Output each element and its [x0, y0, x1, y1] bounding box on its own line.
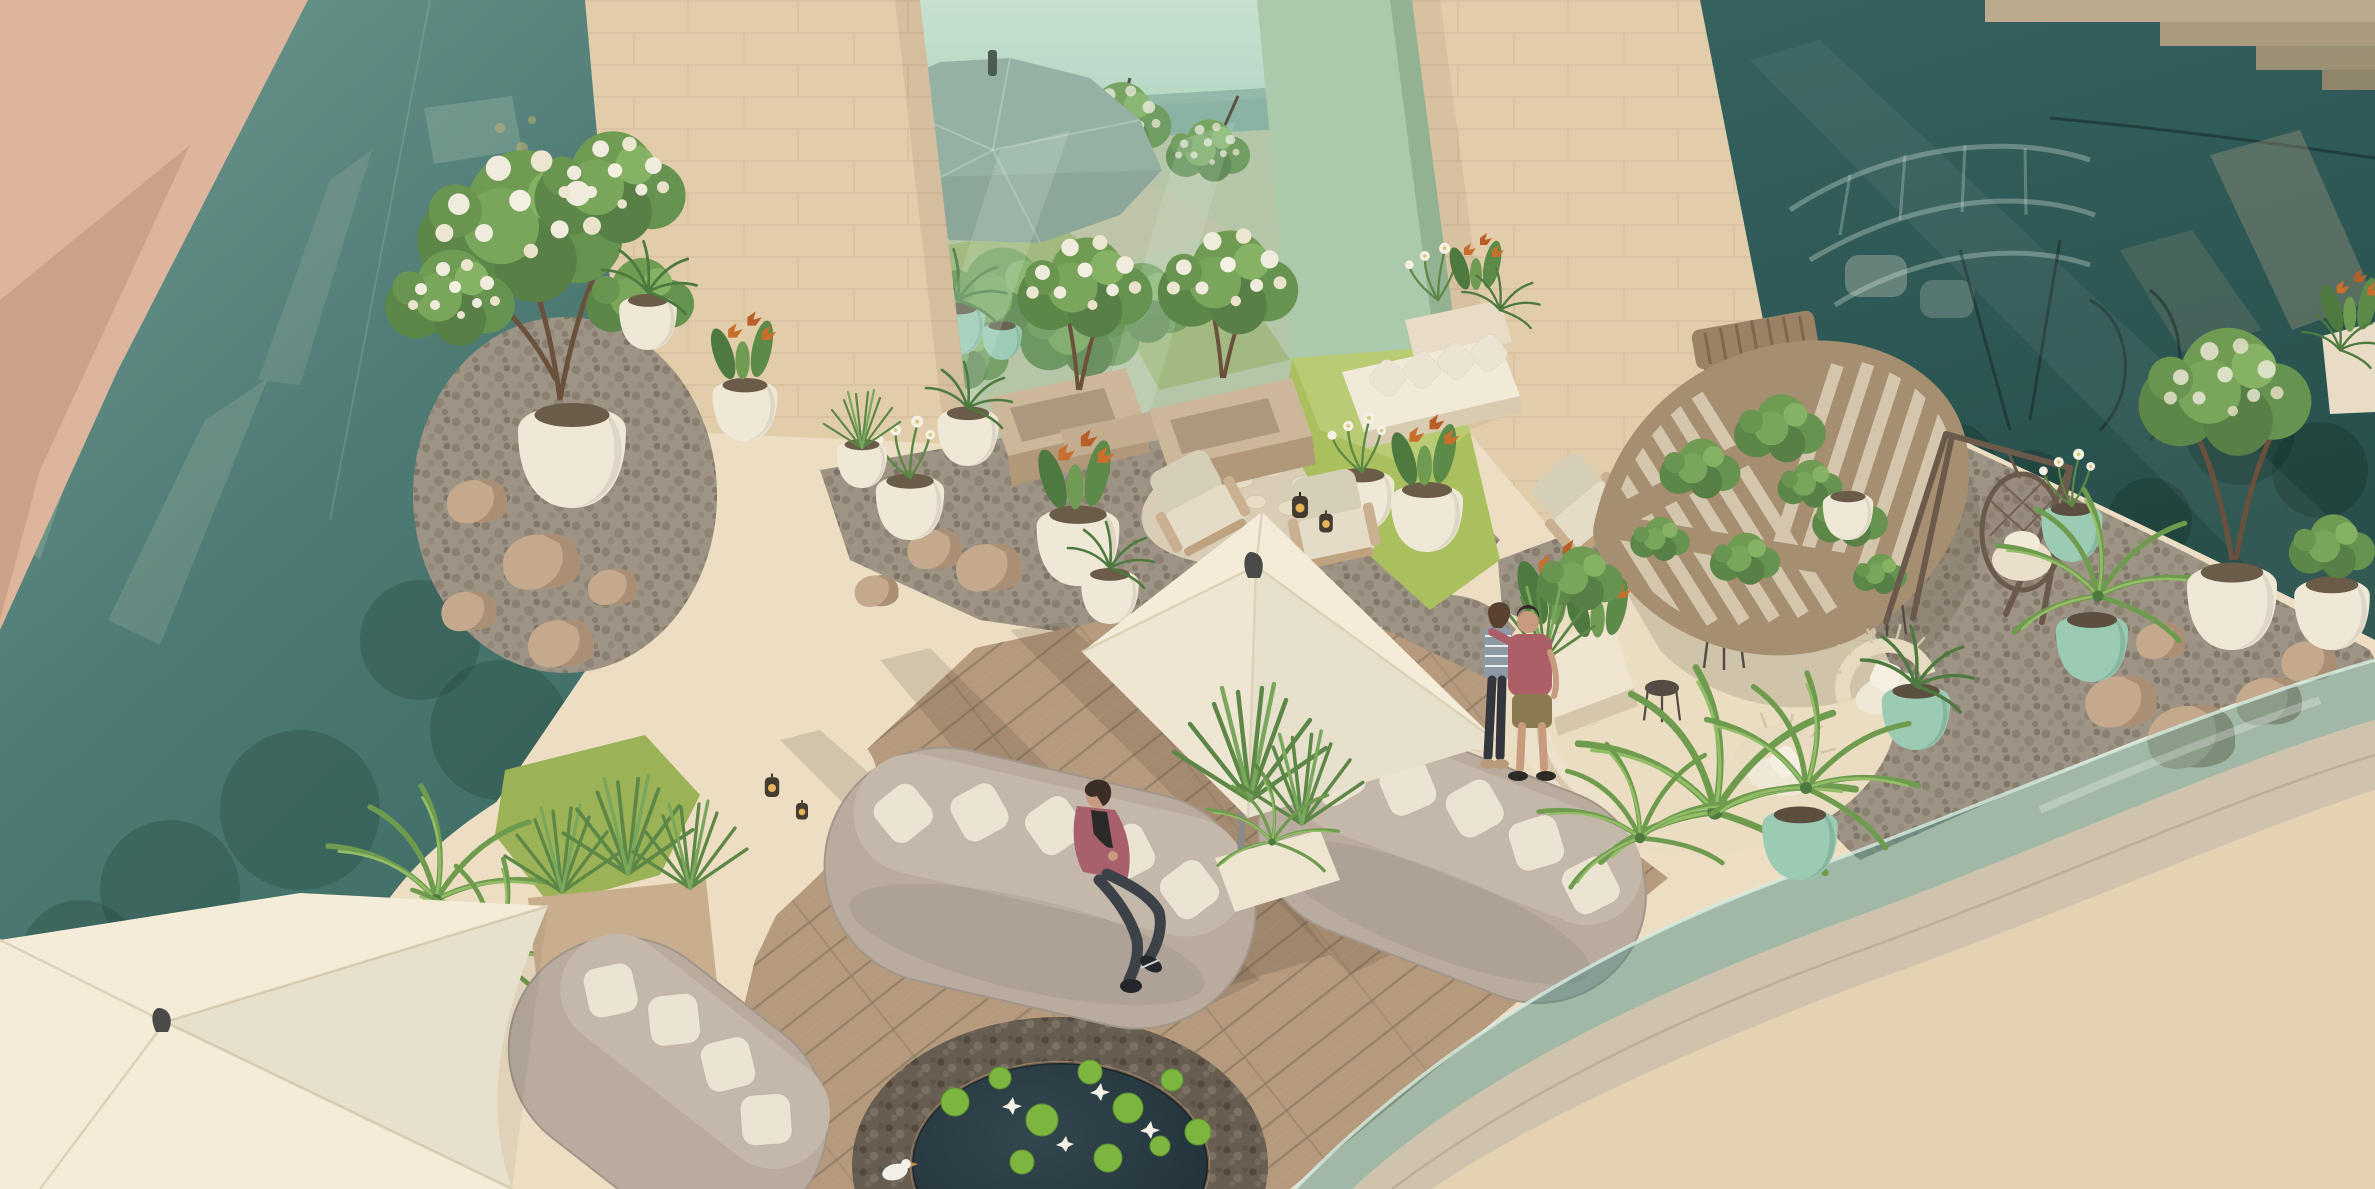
wall-reflection-step [2256, 46, 2375, 70]
leg [1520, 726, 1522, 768]
wall-reflection-step [2322, 70, 2375, 90]
leg [1542, 726, 1544, 768]
wall-reflection-step [2160, 22, 2375, 46]
shoe [1508, 771, 1528, 781]
head [1517, 611, 1539, 633]
hand [1108, 851, 1118, 861]
corner-parasol [0, 893, 548, 1189]
render-canvas [0, 0, 2375, 1189]
terrace-aerial-render [0, 0, 2375, 1189]
sneaker [1120, 979, 1142, 993]
shorts [1512, 694, 1552, 728]
wall-reflection-band [1985, 0, 2375, 22]
shoe [1493, 759, 1509, 769]
shoe [1536, 771, 1556, 781]
chair-reflection [1845, 255, 1907, 297]
chair-reflection [1920, 280, 1974, 318]
legging [1500, 680, 1502, 756]
legging [1488, 680, 1492, 756]
